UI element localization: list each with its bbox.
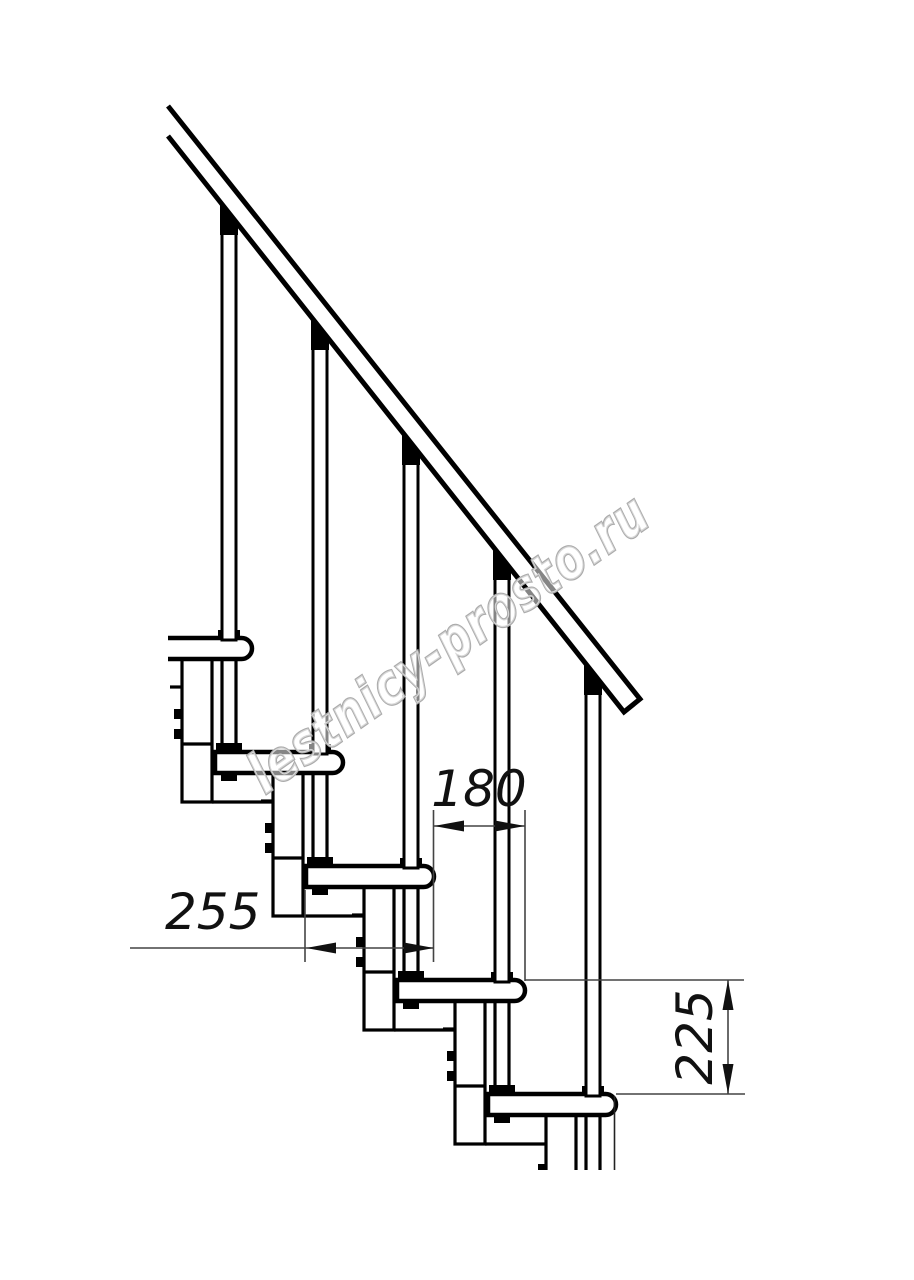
- tread-1: [168, 638, 252, 659]
- adjustment-bolt: [265, 823, 273, 833]
- drawing-page: lestnicy-prosto.ru 180 255 225: [0, 0, 914, 1280]
- dimension-arrow: [434, 821, 464, 832]
- dimension-arrow: [723, 1064, 734, 1094]
- dimension-arrow: [723, 980, 734, 1010]
- adjustment-bolt: [174, 709, 182, 719]
- pipe-nut: [403, 999, 419, 1009]
- pipe-flange: [489, 1085, 515, 1095]
- adjustment-bolt: [265, 843, 273, 853]
- support-column: [364, 885, 394, 1030]
- baluster-1: [222, 230, 236, 640]
- dimension-label-rise: 225: [666, 989, 724, 1084]
- adjustment-bolt: [356, 937, 364, 947]
- baluster-5: [586, 690, 600, 1096]
- pipe-nut: [221, 771, 237, 781]
- dimension-depth: 255: [130, 883, 434, 962]
- adjustment-bolt: [538, 1164, 546, 1170]
- dimension-arrow: [306, 943, 336, 954]
- pipe-flange: [307, 857, 333, 867]
- step-support-module-5: [538, 1113, 600, 1170]
- adjustment-bolt: [447, 1051, 455, 1061]
- staircase-drawing-canvas: lestnicy-prosto.ru 180 255 225: [0, 0, 914, 1280]
- pipe-flange: [398, 971, 424, 981]
- dimension-run: 180: [431, 760, 526, 981]
- adjustment-bolt: [356, 957, 364, 967]
- adjustment-bolt: [447, 1071, 455, 1081]
- support-column: [455, 999, 485, 1144]
- adjustment-bolt: [174, 729, 182, 739]
- pipe-nut: [312, 885, 328, 895]
- pipe-nut: [494, 1113, 510, 1123]
- dimension-label-run: 180: [431, 760, 526, 818]
- dimension-rise: 225: [525, 980, 745, 1094]
- support-column: [182, 657, 212, 802]
- dimension-label-depth: 255: [165, 883, 260, 941]
